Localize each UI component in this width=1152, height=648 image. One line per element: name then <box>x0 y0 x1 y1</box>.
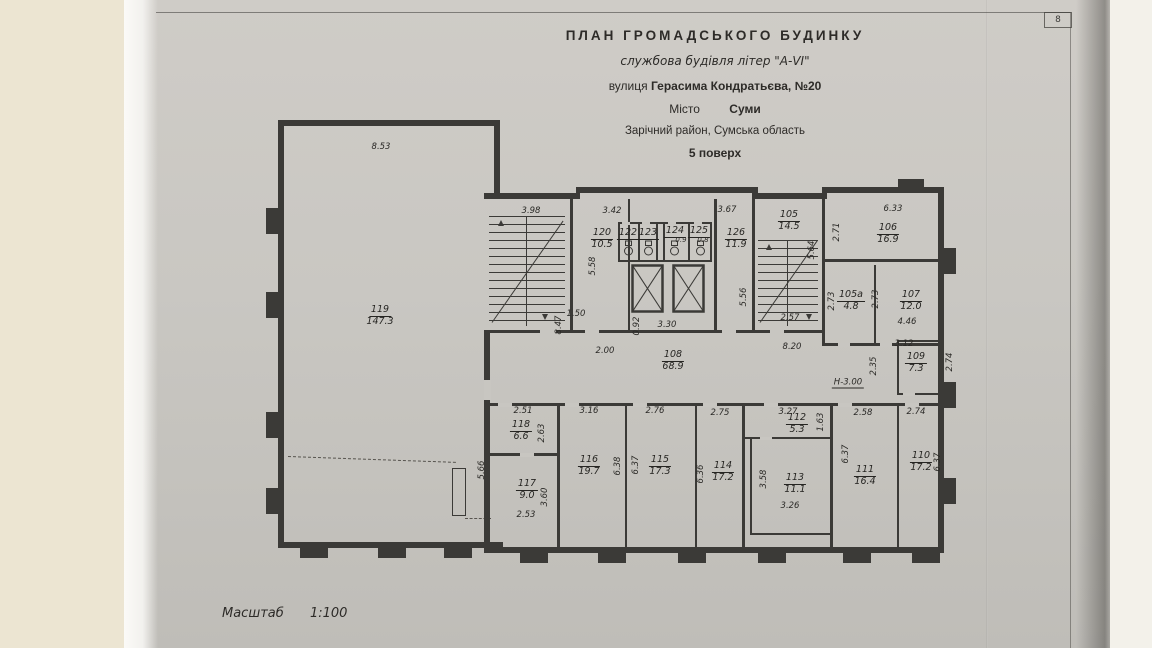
wall <box>822 187 944 193</box>
room-area: 12.0 <box>900 302 921 313</box>
dimension-label: 3.98 <box>522 206 541 216</box>
room-label-106: 10616.9 <box>877 223 899 246</box>
dimension-label: 2.74 <box>945 353 955 372</box>
room-area: 19.7 <box>578 467 599 478</box>
room-label-107: 10712.0 <box>900 290 922 313</box>
door-opening <box>764 403 778 407</box>
room-area: 16.4 <box>854 477 875 488</box>
dimension-label: 3.30 <box>658 320 677 330</box>
dimension-label: 3.27 <box>779 407 798 417</box>
room-label-110: 11017.2 <box>910 451 932 474</box>
dimension-label: 2.63 <box>537 424 547 443</box>
pilaster <box>300 548 328 558</box>
dimension-label: 1.63 <box>816 413 826 432</box>
room-area: 17.2 <box>910 463 931 474</box>
dimension-label: 6.37 <box>631 456 641 475</box>
room-area: 14.5 <box>778 222 799 233</box>
dimension-label: 2.75 <box>711 408 730 418</box>
dimension-label: 2.74 <box>907 407 926 417</box>
dimension-label: 2.73 <box>827 292 837 311</box>
wall <box>278 120 500 126</box>
room-area: 11.1 <box>784 485 805 496</box>
room-number: 122 <box>617 228 639 240</box>
room-area: 11.9 <box>725 240 746 251</box>
pilaster <box>520 553 548 563</box>
door-opening <box>498 403 512 407</box>
door-opening <box>838 403 852 407</box>
dimension-label: 2.76 <box>646 406 665 416</box>
pilaster <box>266 412 278 438</box>
dimension-label: 2.51 <box>514 406 533 416</box>
wall <box>750 437 752 535</box>
wall <box>752 193 827 199</box>
room-label-122: 122 <box>617 228 639 240</box>
wall <box>750 533 830 535</box>
door-opening <box>585 330 599 334</box>
wall <box>625 403 627 547</box>
pilaster <box>598 553 626 563</box>
pilaster <box>266 488 278 514</box>
room-label-118: 1186.6 <box>510 420 532 443</box>
dimension-label: 3.12 <box>895 339 914 349</box>
pilaster <box>758 553 786 563</box>
room-label-119: 119147.3 <box>366 305 393 328</box>
dimension-label: 0.9 <box>675 236 686 244</box>
wall <box>752 199 755 332</box>
room-area: 4.8 <box>843 302 858 313</box>
room-label-109: 1097.3 <box>905 352 927 375</box>
dashed-partition-line <box>288 456 456 463</box>
dimension-label: 8.20 <box>783 342 802 352</box>
dimension-label: 3.58 <box>759 470 769 489</box>
stair-arrow-down-icon <box>542 314 548 320</box>
door-opening <box>703 403 717 407</box>
dimension-label: 2.35 <box>869 357 879 376</box>
dimension-label: Н-3.00 <box>832 378 864 389</box>
door-opening <box>838 343 850 347</box>
dimension-label: 5.66 <box>477 461 487 480</box>
wall <box>484 330 490 553</box>
elevator-shafts <box>631 264 705 314</box>
pilaster <box>898 179 924 187</box>
dimension-label: 2.57 <box>781 313 800 323</box>
pilaster <box>266 292 278 318</box>
door-opening <box>880 343 892 347</box>
room-area: 10.5 <box>591 240 612 251</box>
dimension-label: 2.73 <box>871 290 881 309</box>
dimension-label: 0.92 <box>632 317 642 336</box>
room-number: 123 <box>637 228 659 240</box>
dimension-label: 5.56 <box>739 288 749 307</box>
wall <box>557 403 560 553</box>
dimension-label: 5.58 <box>588 257 598 276</box>
room-area: 5.3 <box>789 425 804 436</box>
room-area: 9.0 <box>519 491 534 502</box>
wall <box>618 260 712 262</box>
wall <box>710 222 712 262</box>
dimension-label: 2.53 <box>517 510 536 520</box>
pilaster <box>378 548 406 558</box>
room-area: 6.6 <box>513 432 528 443</box>
dimension-label: 3.42 <box>603 206 622 216</box>
pier-column <box>452 468 466 516</box>
wall <box>494 120 500 199</box>
dimension-label: 0.8 <box>697 236 708 244</box>
floor-plan-drawing: 119147.312010.512212312412512611.910514.… <box>0 0 1152 648</box>
pilaster <box>944 478 956 504</box>
dimension-label: 3.67 <box>718 205 737 215</box>
room-label-114: 11417.2 <box>712 461 734 484</box>
dimension-label: 5.64 <box>807 241 817 260</box>
wall <box>830 403 833 547</box>
dimension-label: 8.53 <box>372 142 391 152</box>
room-area: 17.3 <box>649 467 670 478</box>
stair-arrow-down-icon <box>806 314 812 320</box>
pilaster <box>944 248 956 274</box>
wall <box>714 199 717 332</box>
pilaster <box>944 382 956 408</box>
door-opening <box>642 222 650 225</box>
dimension-label: 2.71 <box>832 223 842 242</box>
room-label-111: 11116.4 <box>854 465 876 488</box>
wall <box>484 547 944 553</box>
room-label-105а: 105а4.8 <box>837 290 865 313</box>
room-label-113: 11311.1 <box>784 473 806 496</box>
dimension-label: 3.16 <box>580 406 599 416</box>
dimension-label: 8.47 <box>554 316 564 335</box>
door-opening <box>484 380 491 400</box>
room-label-115: 11517.3 <box>649 455 671 478</box>
dimension-label: 3.60 <box>540 488 550 507</box>
room-area: 7.3 <box>908 364 923 375</box>
room-label-117: 1179.0 <box>516 479 538 502</box>
room-label-105: 10514.5 <box>778 210 800 233</box>
toilet-icon <box>643 240 654 257</box>
dimension-label: 4.46 <box>898 317 917 327</box>
wall <box>278 120 284 548</box>
pilaster <box>266 208 278 234</box>
room-label-123: 123 <box>637 228 659 240</box>
door-opening <box>903 393 915 396</box>
stair-arrow-up-icon <box>766 244 772 250</box>
wall <box>628 199 630 332</box>
room-area: 16.9 <box>877 235 898 246</box>
dimension-label: 2.00 <box>596 346 615 356</box>
dimension-label: 6.37 <box>841 445 851 464</box>
wall <box>897 403 899 547</box>
dimension-label: 3.26 <box>781 501 800 511</box>
wall <box>742 437 832 439</box>
pilaster <box>912 553 940 563</box>
stair-arrow-up-icon <box>498 220 504 226</box>
pilaster <box>678 553 706 563</box>
dimension-label: 6.36 <box>696 465 706 484</box>
dimension-label: 1.50 <box>567 309 586 319</box>
room-label-126: 12611.9 <box>725 228 747 251</box>
wall <box>576 187 758 193</box>
room-label-120: 12010.5 <box>591 228 613 251</box>
room-label-108: 10868.9 <box>662 350 684 373</box>
door-opening <box>622 222 630 225</box>
dimension-label: 6.38 <box>613 457 623 476</box>
door-opening <box>760 437 772 440</box>
wall <box>822 193 825 345</box>
dimension-label: 6.33 <box>884 204 903 214</box>
wall <box>742 403 745 547</box>
room-area: 17.2 <box>712 473 733 484</box>
dimension-label: 6.37 <box>933 453 943 472</box>
wall <box>822 259 944 262</box>
door-opening <box>770 330 784 334</box>
door-opening <box>520 453 534 457</box>
room-label-116: 11619.7 <box>578 455 600 478</box>
wall <box>484 193 580 199</box>
pilaster <box>444 548 472 558</box>
room-area: 147.3 <box>366 317 393 328</box>
door-opening <box>722 330 736 334</box>
room-area: 68.9 <box>662 362 683 373</box>
pilaster <box>843 553 871 563</box>
dimension-label: 2.58 <box>854 408 873 418</box>
door-opening <box>565 403 579 407</box>
